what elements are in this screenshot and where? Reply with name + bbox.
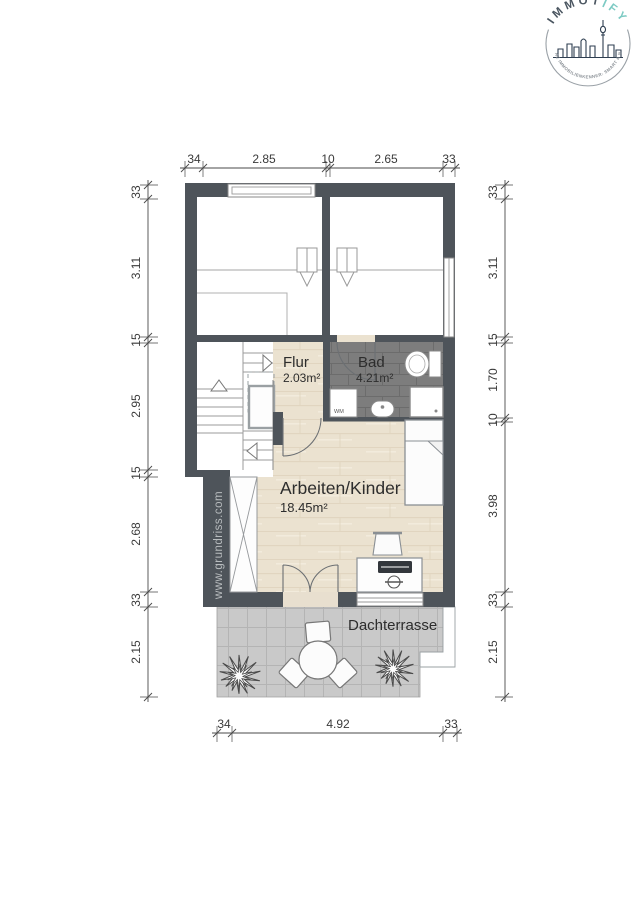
wall-right: [443, 183, 455, 607]
terrace-chair: [305, 621, 331, 643]
toilet: [405, 351, 441, 377]
wall-top: [185, 183, 455, 197]
window-terrace: [357, 593, 423, 606]
dim-label: 1.70: [486, 368, 500, 392]
terrace: Dachterrasse: [217, 607, 455, 697]
dim-label: 33: [486, 593, 500, 607]
room-label-flur: Flur: [283, 354, 309, 371]
wardrobe: [230, 477, 257, 592]
staircase: [197, 342, 274, 470]
wall-left-jog: [185, 470, 230, 477]
dim-label: 2.68: [129, 522, 143, 546]
terrace-table: [299, 641, 337, 679]
shower: [410, 387, 443, 417]
window-top: [228, 184, 315, 197]
dim-label: 33: [129, 185, 143, 199]
room-area-bad: 4.21m²: [356, 371, 393, 385]
dim-label: 2.15: [486, 640, 500, 664]
dim-label: 3.11: [486, 256, 500, 279]
wall-door-stub: [273, 412, 283, 445]
dim-label: 33: [486, 185, 500, 199]
dim-label: 33: [442, 152, 456, 166]
dim-label: 10: [321, 152, 335, 166]
wall-left-upper: [185, 183, 197, 477]
dim-label: 15: [486, 333, 500, 347]
dim-label: 33: [444, 717, 458, 731]
dim-label: 15: [129, 466, 143, 480]
watermark: www.grundriss.com: [213, 491, 225, 600]
dim-label: 2.15: [129, 640, 143, 664]
dim-label: 3.11: [129, 256, 143, 279]
dim-label: 33: [129, 593, 143, 607]
wall-center: [322, 197, 330, 342]
room-label-bad: Bad: [358, 354, 385, 371]
dim-label: 10: [486, 413, 500, 427]
floor-plan-svg: Dachterrasse: [0, 0, 634, 900]
wall-flur-bad: [323, 342, 330, 417]
washing-machine-label: WM: [334, 409, 344, 415]
dim-label: 15: [129, 333, 143, 347]
dim-label: 4.92: [326, 717, 350, 731]
dim-label: 2.95: [129, 394, 143, 418]
room-label-arbeiten: Arbeiten/Kinder: [280, 478, 401, 498]
desk-chair: [373, 533, 402, 555]
door-threshold: [283, 592, 338, 607]
wall-row: [185, 335, 455, 342]
room-area-arbeiten: 18.45m²: [280, 500, 328, 515]
dim-label: 2.85: [252, 152, 276, 166]
stair-landing: [249, 386, 274, 428]
room-area-flur: 2.03m²: [283, 371, 320, 385]
washing-machine: WM: [330, 389, 357, 417]
room-label-dachterrasse: Dachterrasse: [348, 617, 437, 634]
floorplan-page: Dachterrasse: [0, 0, 634, 900]
dim-label: 2.65: [374, 152, 398, 166]
desk: [357, 558, 422, 592]
door-threshold: [337, 335, 375, 342]
dim-label: 34: [187, 152, 201, 166]
sink: [371, 401, 394, 417]
bed: [405, 420, 443, 505]
dim-label: 3.98: [486, 494, 500, 518]
dim-label: 34: [217, 717, 231, 731]
window-right: [444, 258, 454, 337]
